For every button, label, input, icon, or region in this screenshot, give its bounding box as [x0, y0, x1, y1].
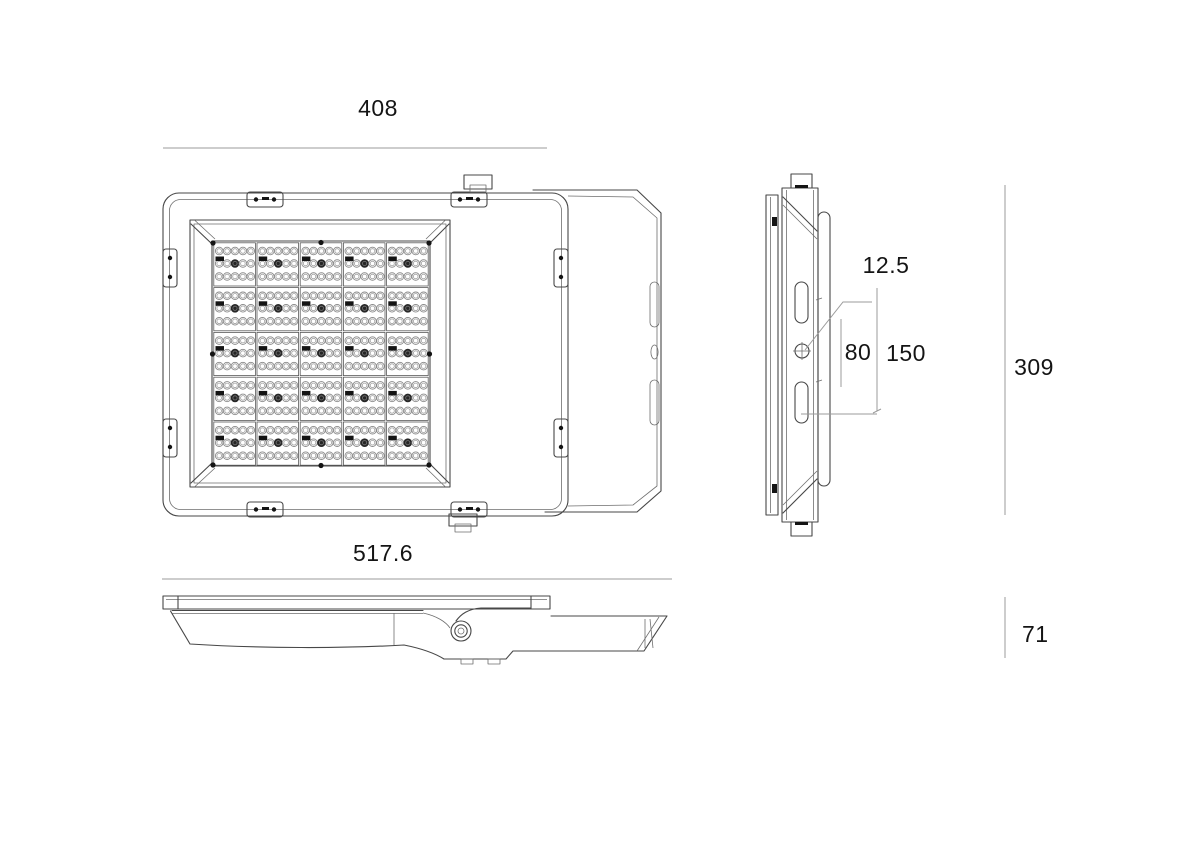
- side-glass-plate: [766, 195, 778, 515]
- module-label: [259, 391, 268, 396]
- screw: [426, 240, 431, 245]
- side-body: [782, 174, 818, 536]
- module-label: [388, 257, 397, 262]
- mount-slot-bottom: [650, 380, 659, 425]
- screw: [426, 462, 431, 467]
- led-center-dark: [317, 349, 326, 358]
- led-center-dark: [274, 438, 283, 447]
- module-label: [259, 436, 268, 441]
- dim-label-thickness: 71: [1022, 621, 1049, 647]
- module-label: [259, 301, 268, 306]
- drawing-sheet: 408: [0, 0, 1191, 842]
- led-center-dark: [274, 394, 283, 403]
- profile-rim: [163, 596, 550, 609]
- chamfer-bottom: [783, 479, 817, 513]
- led-center-dark: [231, 394, 240, 403]
- module-label: [216, 436, 225, 441]
- pivot-tab-top: [464, 175, 492, 192]
- module-label: [388, 301, 397, 306]
- side-dimensions: 12.5 80 150 309: [801, 185, 1054, 515]
- led-center-dark: [360, 259, 369, 268]
- module-label: [216, 346, 225, 351]
- screw: [318, 240, 323, 245]
- slot-bottom: [795, 382, 808, 423]
- led-center-dark: [231, 304, 240, 313]
- clip-right-bottom: [554, 419, 568, 457]
- module-label: [216, 257, 225, 262]
- screw: [210, 351, 215, 356]
- module-label: [216, 301, 225, 306]
- module-label: [388, 436, 397, 441]
- pivot-bolt: [451, 621, 471, 641]
- profile-arm: [423, 608, 667, 664]
- led-center-dark: [404, 438, 413, 447]
- module-label: [345, 436, 354, 441]
- module-label: [345, 346, 354, 351]
- arm-foot: [461, 659, 473, 664]
- led-center-dark: [317, 259, 326, 268]
- clip-right-top: [554, 249, 568, 287]
- screw: [210, 462, 215, 467]
- side-mount-plate: [816, 212, 830, 486]
- module-label: [302, 391, 311, 396]
- led-center-dark: [274, 259, 283, 268]
- arm-foot: [488, 659, 500, 664]
- module-label: [388, 391, 397, 396]
- led-center-dark: [360, 349, 369, 358]
- module-label: [345, 257, 354, 262]
- led-center-dark: [404, 394, 413, 403]
- slot-top: [795, 282, 808, 323]
- profile-view: 517.6: [162, 540, 1049, 664]
- module-label: [259, 257, 268, 262]
- led-center-dark: [231, 259, 240, 268]
- led-center-dark: [360, 394, 369, 403]
- dim-label-hole: 12.5: [863, 252, 910, 278]
- front-view: 408: [163, 95, 661, 532]
- led-center-dark: [274, 304, 283, 313]
- module-label: [388, 346, 397, 351]
- screw: [427, 351, 432, 356]
- led-grid: [214, 243, 428, 465]
- module-label: [259, 346, 268, 351]
- led-center-dark: [274, 349, 283, 358]
- clip-left-top: [163, 249, 177, 287]
- dim-label-150: 150: [886, 340, 926, 366]
- led-center-dark: [404, 259, 413, 268]
- module-label: [345, 301, 354, 306]
- module-label: [216, 391, 225, 396]
- mount-slot-top: [650, 282, 659, 327]
- dim-label-length: 517.6: [353, 540, 413, 566]
- led-center-dark: [360, 304, 369, 313]
- mount-plate-front: [533, 190, 661, 512]
- chamfer-top: [783, 197, 817, 231]
- module-label: [302, 257, 311, 262]
- led-center-dark: [317, 304, 326, 313]
- side-slots: [793, 282, 811, 423]
- module-label: [302, 301, 311, 306]
- led-center-dark: [317, 438, 326, 447]
- led-center-dark: [317, 394, 326, 403]
- led-center-dark: [404, 349, 413, 358]
- dim-label-height: 309: [1014, 354, 1054, 380]
- screw: [318, 463, 323, 468]
- module-label: [345, 391, 354, 396]
- led-center-dark: [231, 438, 240, 447]
- led-center-dark: [404, 304, 413, 313]
- led-center-dark: [231, 349, 240, 358]
- side-view: 12.5 80 150 309: [766, 174, 1054, 536]
- led-center-dark: [360, 438, 369, 447]
- technical-drawing: 408: [0, 0, 1191, 842]
- module-label: [302, 346, 311, 351]
- screw: [210, 240, 215, 245]
- dim-label-80: 80: [845, 339, 872, 365]
- module-label: [302, 436, 311, 441]
- profile-body: [171, 611, 445, 660]
- clip-left-bottom: [163, 419, 177, 457]
- dim-label-width: 408: [358, 95, 398, 121]
